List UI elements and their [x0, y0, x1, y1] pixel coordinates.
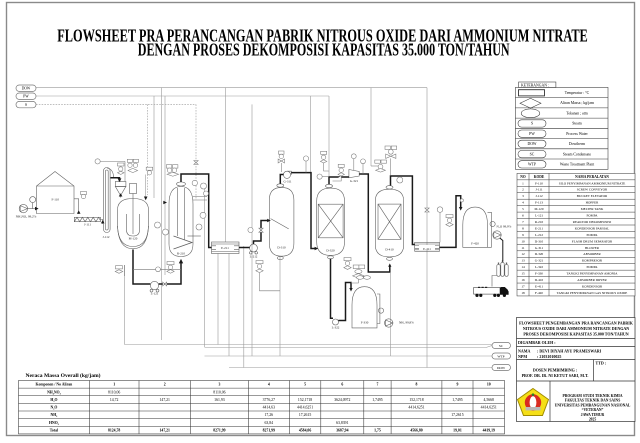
- svg-text:J-111: J-111: [84, 222, 91, 226]
- svg-text:R-210: R-210: [177, 252, 185, 256]
- svg-text:: DEVI DIYAH AYU PRAMESWARI: : DEVI DIYAH AYU PRAMESWARI: [537, 349, 602, 354]
- svg-text:L-121: L-121: [535, 214, 543, 218]
- svg-text:FLOWSHEET PENGEMBANGAN PRA RAN: FLOWSHEET PENGEMBANGAN PRA RANCANGAN PAB…: [519, 321, 634, 326]
- svg-text:9: 9: [456, 383, 458, 387]
- svg-text:D-410: D-410: [385, 248, 394, 252]
- svg-text:DENGAN PROSES DEKOMPOSISI KAPA: DENGAN PROSES DEKOMPOSISI KAPASITAS 35.0…: [138, 40, 510, 60]
- svg-text:D-410: D-410: [535, 278, 544, 282]
- svg-text:KODE: KODE: [534, 175, 545, 179]
- svg-text:SCREW CONVEYOR: SCREW CONVEYOR: [577, 188, 608, 192]
- svg-text:Total: Total: [50, 428, 58, 432]
- svg-text:NH₃: NH₃: [50, 413, 58, 417]
- svg-text:147,21: 147,21: [160, 428, 171, 432]
- svg-text:D-320: D-320: [326, 249, 335, 253]
- svg-text:D-310: D-310: [277, 246, 286, 250]
- svg-text:DIGAMBAR OLEH :: DIGAMBAR OLEH :: [518, 340, 556, 345]
- svg-text:NO: NO: [520, 175, 526, 179]
- svg-text:REAKTOR DEKOMPOSISI: REAKTOR DEKOMPOSISI: [573, 220, 612, 224]
- svg-text:HNO₃: HNO₃: [49, 421, 60, 425]
- svg-text:Aliran Massa ; kg/jam: Aliran Massa ; kg/jam: [560, 101, 594, 105]
- svg-text:TTD :: TTD :: [596, 361, 607, 366]
- svg-text:12: 12: [521, 252, 525, 256]
- svg-text:DOSEN PEMBIMBING :: DOSEN PEMBIMBING :: [533, 368, 577, 373]
- svg-text:NH₄NO₃: NH₄NO₃: [47, 390, 62, 394]
- svg-text:S: S: [531, 122, 533, 126]
- svg-text:8271,99: 8271,99: [263, 428, 275, 432]
- svg-text:DOW: DOW: [497, 366, 506, 370]
- svg-text:1,75: 1,75: [374, 428, 381, 432]
- svg-text:15: 15: [521, 272, 525, 276]
- svg-text:DOW: DOW: [527, 142, 536, 146]
- svg-text:Steam: Steam: [572, 122, 582, 126]
- svg-text:1: 1: [113, 383, 115, 387]
- svg-text:SILO PENYIMPANAN AMMONIUM NITR: SILO PENYIMPANAN AMMONIUM NITRATE: [559, 181, 625, 185]
- svg-text:8271,99: 8271,99: [213, 428, 225, 432]
- svg-text:TANGKI PENYIMPANAN GAS NITROUS: TANGKI PENYIMPANAN GAS NITROUS OXIDE: [557, 291, 628, 295]
- svg-text:KETERANGAN :: KETERANGAN :: [521, 83, 549, 87]
- svg-text:10: 10: [521, 239, 525, 243]
- svg-text:F-420: F-420: [535, 291, 543, 295]
- svg-text:S: S: [25, 103, 27, 107]
- svg-text:L-212: L-212: [535, 233, 543, 237]
- svg-text:PROF. DR. IR. NI KETUT SARI, M: PROF. DR. IR. NI KETUT SARI, M.T.: [522, 373, 589, 378]
- svg-text:M-120: M-120: [535, 207, 544, 211]
- svg-text:DOW: DOW: [22, 87, 31, 91]
- svg-text:POMPA: POMPA: [586, 233, 598, 237]
- svg-text:J-112: J-112: [103, 235, 110, 239]
- svg-text:: 21031010025: : 21031010025: [537, 354, 561, 359]
- svg-text:L-212: L-212: [250, 255, 258, 259]
- svg-text:7: 7: [376, 383, 378, 387]
- svg-text:JAWA TIMUR: JAWA TIMUR: [581, 413, 605, 417]
- svg-text:Steam Condensate: Steam Condensate: [563, 152, 591, 156]
- svg-text:J-112: J-112: [535, 194, 543, 198]
- svg-text:KOMPRESOR: KOMPRESOR: [582, 259, 603, 263]
- svg-text:G-321: G-321: [535, 259, 544, 263]
- svg-text:11: 11: [521, 246, 525, 250]
- svg-text:KONDENSOR PARSIAL: KONDENSOR PARSIAL: [575, 226, 610, 230]
- svg-text:UNIVERSITAS PEMBANGUNAN NASION: UNIVERSITAS PEMBANGUNAN NASIONAL: [555, 403, 631, 407]
- svg-text:FLASH DRUM SEPARATOR: FLASH DRUM SEPARATOR: [572, 239, 613, 243]
- svg-text:8: 8: [416, 383, 418, 387]
- svg-text:N₂O: N₂O: [50, 406, 57, 410]
- svg-text:NITROUS OXIDE DARI AMMONIUM NI: NITROUS OXIDE DARI AMMONIUM NITRATE DENG…: [523, 326, 629, 331]
- svg-text:PROGRAM STUDI TEKNIK KIMIA: PROGRAM STUDI TEKNIK KIMIA: [562, 394, 622, 398]
- svg-text:F-113: F-113: [535, 201, 543, 205]
- svg-text:16: 16: [521, 278, 525, 282]
- svg-text:Process Water: Process Water: [566, 132, 588, 136]
- svg-text:Dowtherm: Dowtherm: [569, 142, 585, 146]
- svg-text:ABSORBER: ABSORBER: [583, 252, 601, 256]
- svg-text:L-322: L-322: [535, 265, 543, 269]
- svg-text:M-120: M-120: [129, 237, 138, 241]
- svg-text:NAMA PERALATAN: NAMA PERALATAN: [575, 175, 609, 179]
- svg-text:E-211: E-211: [535, 226, 543, 230]
- svg-text:4566,80: 4566,80: [410, 428, 422, 432]
- svg-text:L-121: L-121: [151, 292, 159, 296]
- svg-text:SC: SC: [499, 344, 504, 348]
- svg-text:PROSES DEKOMPOSISI KAPASITAS 3: PROSES DEKOMPOSISI KAPASITAS 35.000 TON/…: [523, 332, 628, 337]
- svg-text:NAMA: NAMA: [518, 349, 531, 354]
- svg-text:H₂O: H₂O: [50, 398, 57, 402]
- svg-text:18: 18: [521, 291, 525, 295]
- svg-text:Waste Treatment Plant: Waste Treatment Plant: [560, 163, 595, 167]
- svg-text:D-310: D-310: [535, 239, 544, 243]
- svg-text:4419,19: 4419,19: [483, 428, 495, 432]
- svg-text:19,01: 19,01: [453, 428, 462, 432]
- svg-text:8124,78: 8124,78: [108, 428, 120, 432]
- svg-text:3687,94: 3687,94: [336, 428, 348, 432]
- svg-text:BLOWER: BLOWER: [585, 246, 600, 250]
- svg-text:4584,06: 4584,06: [299, 428, 311, 432]
- svg-text:3: 3: [218, 383, 220, 387]
- svg-text:14: 14: [521, 265, 525, 269]
- svg-text:POMPA: POMPA: [586, 214, 598, 218]
- svg-text:NPM: NPM: [518, 354, 527, 359]
- svg-text:4: 4: [268, 383, 270, 387]
- svg-text:13: 13: [521, 259, 525, 263]
- svg-text:R-210: R-210: [535, 220, 544, 224]
- svg-text:MELTER TANK: MELTER TANK: [581, 207, 604, 211]
- svg-text:E-411: E-411: [535, 284, 543, 288]
- svg-text:“VETERAN”: “VETERAN”: [582, 407, 604, 412]
- svg-text:E-411: E-411: [423, 247, 431, 251]
- svg-text:ADSORBER DRYER: ADSORBER DRYER: [577, 278, 607, 282]
- svg-text:F-110: F-110: [51, 198, 59, 202]
- svg-text:L-322: L-322: [332, 326, 340, 330]
- svg-text:D-320: D-320: [535, 252, 544, 256]
- svg-text:PW: PW: [529, 132, 535, 136]
- svg-text:10: 10: [487, 383, 491, 387]
- svg-text:F-330: F-330: [535, 272, 543, 276]
- svg-text:6: 6: [341, 383, 343, 387]
- svg-text:FAKULTAS TEKNIK DAN SAINS: FAKULTAS TEKNIK DAN SAINS: [565, 399, 621, 403]
- svg-text:E-211: E-211: [221, 246, 229, 250]
- svg-text:POMPA: POMPA: [586, 265, 598, 269]
- svg-text:G-311: G-311: [535, 246, 544, 250]
- svg-text:Neraca Massa Overall (kg/jam): Neraca Massa Overall (kg/jam): [26, 372, 101, 379]
- svg-text:HOPPER: HOPPER: [586, 201, 599, 205]
- svg-text:G-311: G-311: [283, 180, 291, 184]
- svg-text:2: 2: [164, 383, 166, 387]
- svg-text:Temperatur : °C: Temperatur : °C: [565, 91, 590, 95]
- svg-text:J-111: J-111: [535, 188, 542, 192]
- svg-text:5: 5: [304, 383, 306, 387]
- svg-text:Komponen / No Aliran: Komponen / No Aliran: [35, 383, 73, 387]
- svg-text:KONDENSOR: KONDENSOR: [582, 284, 603, 288]
- svg-text:WTP: WTP: [497, 354, 504, 358]
- svg-text:PW: PW: [23, 95, 29, 99]
- svg-text:BUCKET ELEVATOR: BUCKET ELEVATOR: [577, 194, 608, 198]
- svg-text:2025: 2025: [589, 418, 597, 422]
- svg-text:F-330: F-330: [361, 321, 369, 325]
- svg-text:F-110: F-110: [535, 181, 543, 185]
- svg-text:SC: SC: [530, 152, 535, 156]
- svg-text:F-420: F-420: [471, 242, 479, 246]
- svg-text:17: 17: [521, 284, 525, 288]
- svg-text:WTP: WTP: [528, 163, 536, 167]
- svg-text:TANGKI PENYIMPANAN AMONIA: TANGKI PENYIMPANAN AMONIA: [566, 272, 618, 276]
- svg-text:G-321: G-321: [350, 179, 359, 183]
- svg-text:Tekanan ; atm: Tekanan ; atm: [566, 112, 587, 116]
